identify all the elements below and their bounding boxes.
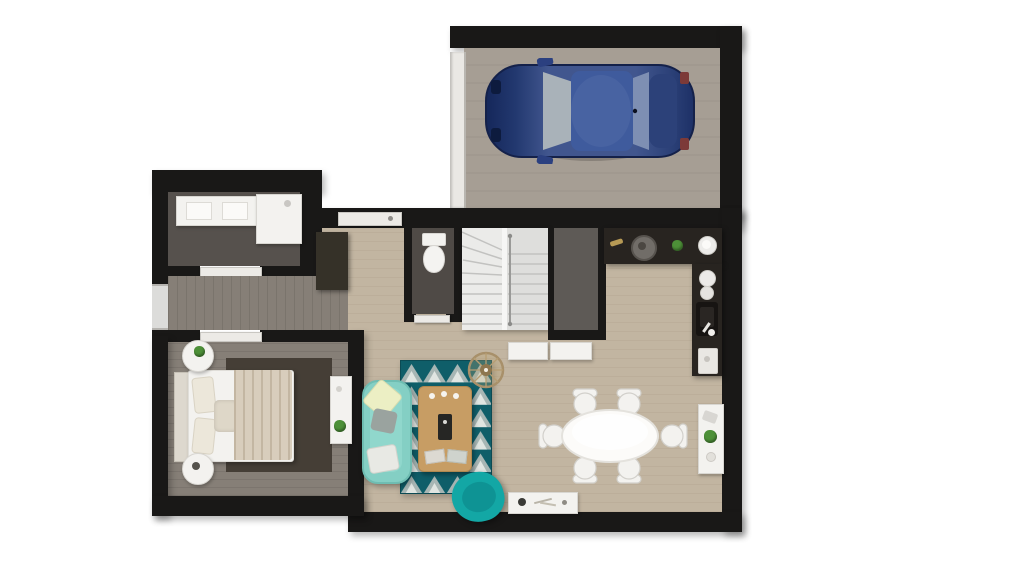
bath-hall-wall-right	[260, 266, 322, 276]
dining-console-vase	[706, 452, 716, 462]
dining-set	[538, 388, 688, 484]
bench-pebble	[562, 500, 567, 505]
chair-right	[661, 425, 683, 447]
bed-throw-blanket	[234, 370, 292, 460]
wc-left-wall	[404, 228, 412, 320]
nightstand-decor	[192, 462, 200, 470]
house-right-wall	[722, 208, 742, 532]
car-antenna	[633, 109, 637, 113]
stair-stringer	[502, 228, 507, 330]
kitchen-plates-inner	[702, 240, 711, 249]
car-headlight-top	[491, 80, 501, 94]
garage-door	[450, 52, 466, 208]
hall-cabinet-right	[550, 342, 592, 360]
bathroom-top-wall	[152, 170, 322, 192]
car	[483, 58, 699, 164]
kitchen-burner-center	[638, 242, 646, 250]
sofa-cushion-white	[366, 444, 400, 475]
console-vase	[336, 386, 342, 392]
kitchen-dish-stack-1	[699, 270, 716, 287]
garage-right-wall	[720, 26, 742, 218]
tablet-logo-dot	[443, 420, 447, 424]
staircase	[462, 228, 548, 330]
car-headlight-bottom	[491, 128, 501, 142]
kitchen-green-fruit	[672, 240, 683, 251]
hall-cabinet-left	[508, 342, 548, 360]
bathroom-left-wall	[152, 192, 168, 270]
pantry-floor	[554, 228, 598, 332]
console-plant	[334, 420, 346, 432]
toilet-bowl	[423, 245, 445, 273]
sofa-cushion-gray	[370, 408, 398, 435]
coffee-table-tablet	[438, 414, 452, 440]
bedroom-door	[200, 332, 262, 342]
wc-door	[414, 315, 450, 323]
coffee-table-magazine-2	[446, 449, 467, 464]
entry-wardrobe	[316, 232, 348, 290]
car-roof-highlight	[571, 75, 631, 147]
car-taillight-top	[680, 72, 689, 84]
bed-pillow-bottom	[191, 417, 217, 455]
coffee-table-candle-3	[453, 393, 459, 399]
nightstand-plant	[194, 346, 205, 357]
shower	[256, 194, 302, 244]
bedroom-left-wall	[152, 336, 168, 516]
hallway-window	[152, 284, 168, 330]
vanity-sink-right	[222, 202, 248, 220]
bedroom-bottom-wall	[152, 496, 364, 516]
coffee-table-magazine-1	[424, 449, 446, 465]
house-bottom-wall	[348, 512, 742, 532]
hall-bedroom-wall-right	[260, 330, 348, 342]
shower-drain	[284, 200, 291, 207]
rattan-pendant-lamp	[466, 350, 506, 390]
kitchen-dish-stack-2	[700, 286, 714, 300]
car-windshield	[543, 72, 573, 150]
kitchen-board-dot	[704, 356, 710, 362]
bench-bowl	[518, 498, 526, 506]
dining-table-highlight	[572, 414, 648, 450]
bed-pillow-top	[191, 376, 217, 414]
coffee-table-candle-1	[429, 393, 435, 399]
wc-right-wall	[454, 228, 462, 320]
car-taillight-bottom	[680, 138, 689, 150]
floor-plan-render	[0, 0, 1024, 576]
vanity-sink-left	[186, 202, 212, 220]
dining-console-plant	[704, 430, 717, 443]
kitchen-faucet	[708, 329, 715, 336]
car-trunk	[649, 74, 677, 148]
garage-top-wall	[450, 26, 742, 48]
coffee-table-candle-2	[441, 391, 447, 397]
front-door-handle	[388, 216, 393, 221]
